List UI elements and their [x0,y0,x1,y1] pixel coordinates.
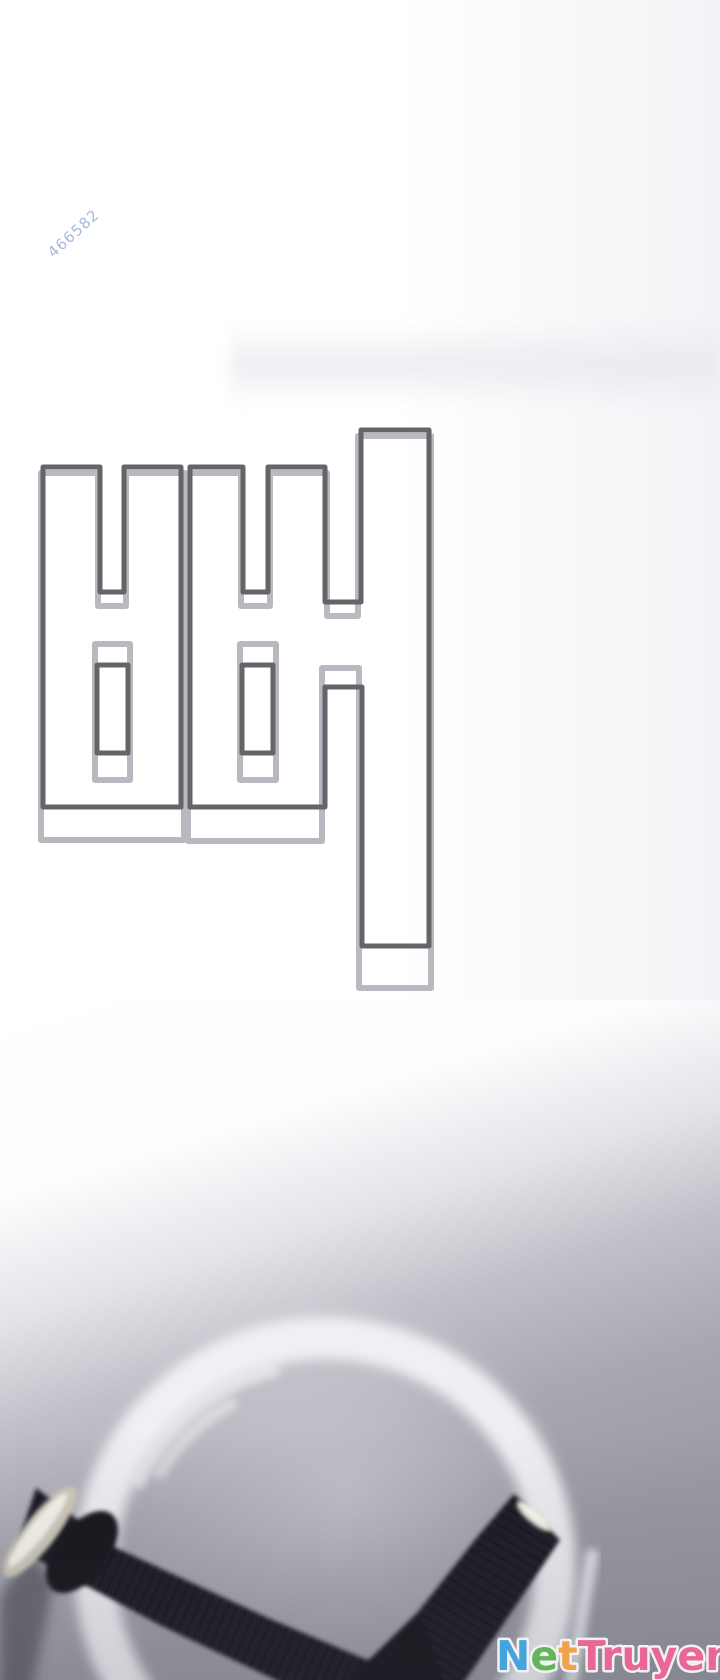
logo-letter: n [705,1632,720,1680]
site-logo: NetTruyen [0,1630,720,1680]
logo-letter: e [677,1632,705,1680]
logo-letter: r [601,1632,622,1680]
logo-letter: t [558,1632,578,1680]
comic-page-image[interactable]: 466582 [0,0,720,1680]
svg-text:NetTruyen: NetTruyen [496,1632,720,1680]
logo-letter: u [621,1632,650,1680]
logo-letter: y [651,1632,678,1680]
sfx-dark-outline [43,430,429,946]
sound-effect-glyph [0,0,720,1000]
logo-letter: e [530,1632,558,1680]
logo-letter: N [496,1632,530,1680]
